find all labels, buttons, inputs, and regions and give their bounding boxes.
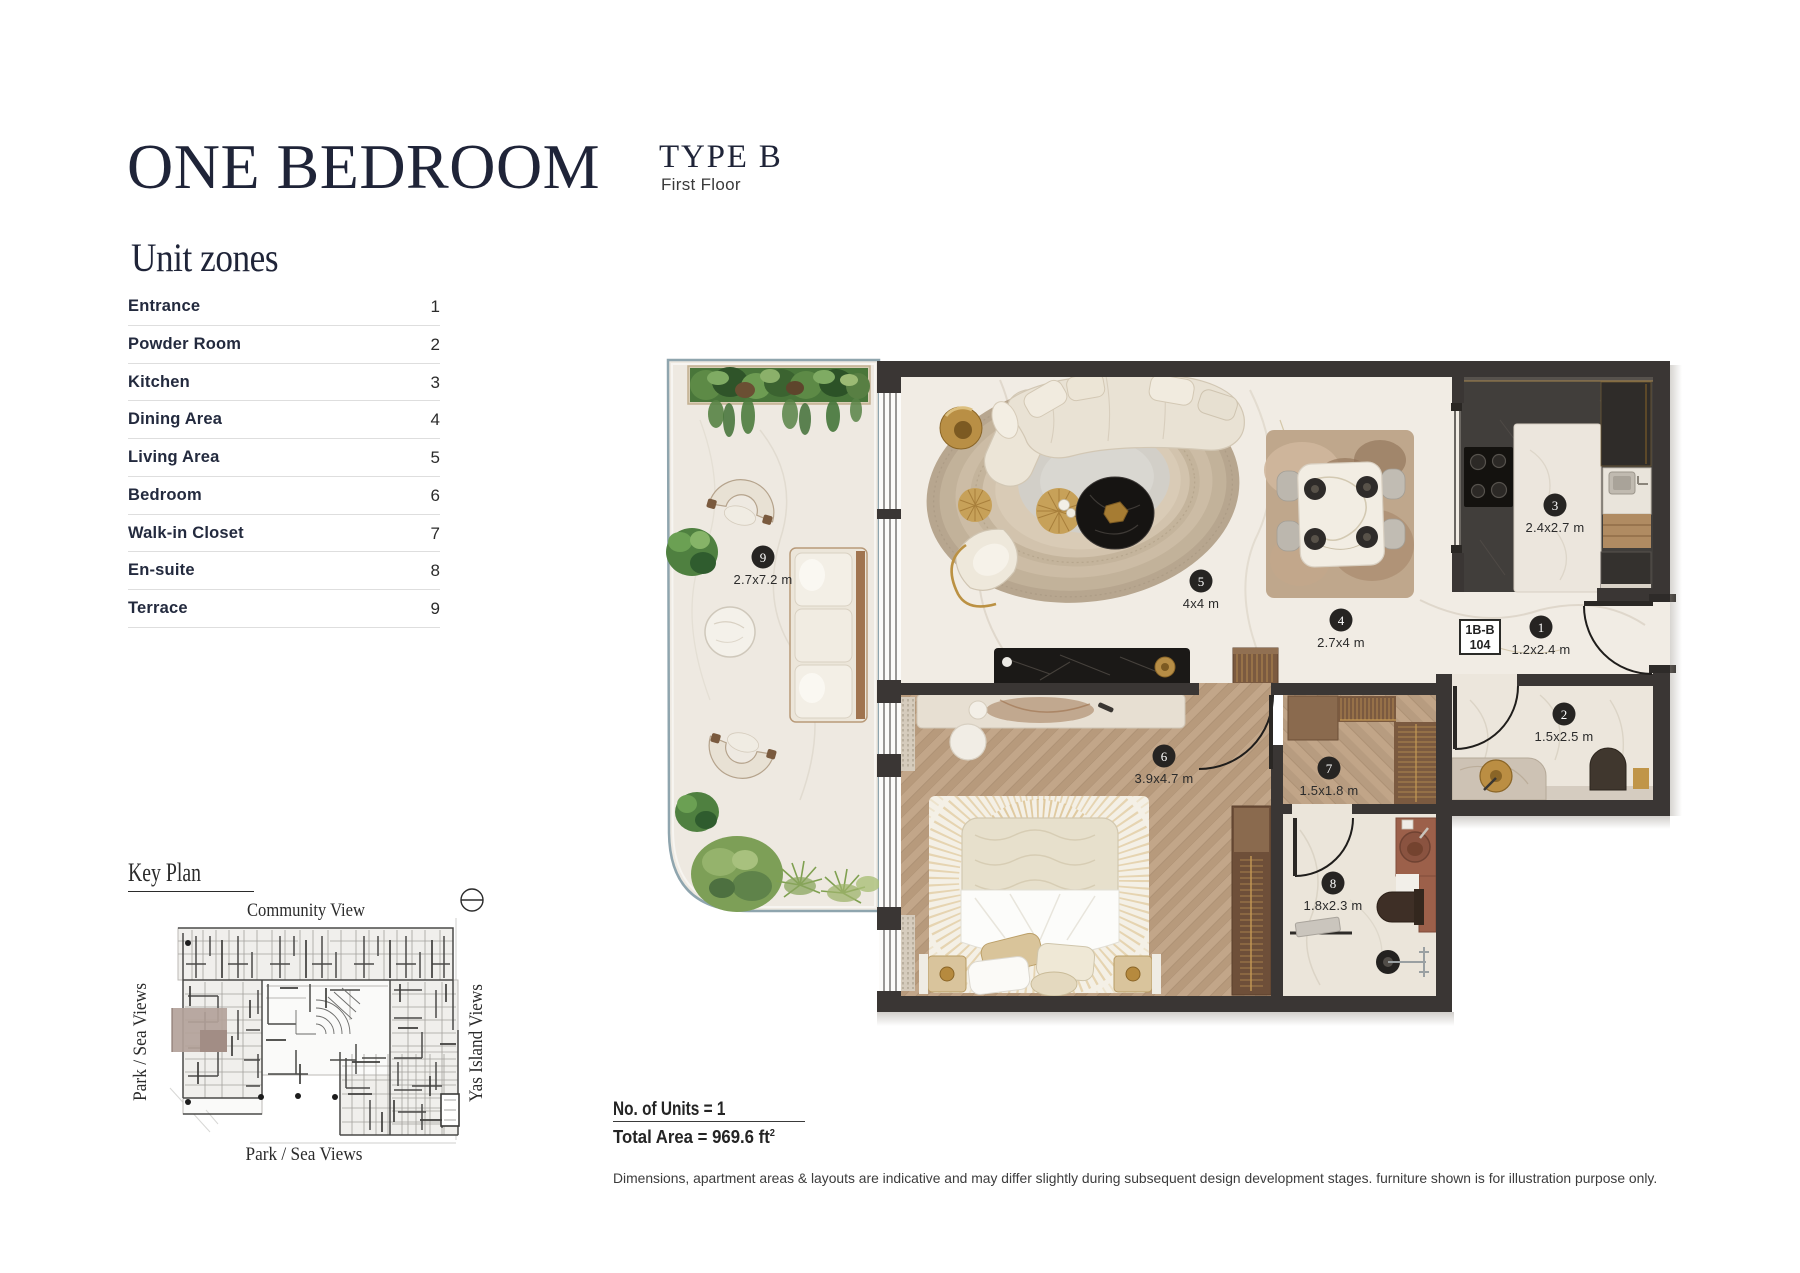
svg-text:Park / Sea Views: Park / Sea Views (246, 1144, 363, 1165)
svg-text:5: 5 (1198, 574, 1205, 589)
svg-text:8: 8 (1330, 876, 1337, 891)
svg-text:Park / Sea Views: Park / Sea Views (130, 983, 151, 1101)
svg-text:1.5x1.8 m: 1.5x1.8 m (1300, 783, 1359, 798)
svg-text:9: 9 (760, 550, 767, 565)
svg-text:4: 4 (1338, 613, 1345, 628)
svg-text:Yas Island Views: Yas Island Views (466, 984, 487, 1102)
svg-text:1: 1 (1538, 620, 1545, 635)
svg-text:1.8x2.3 m: 1.8x2.3 m (1304, 898, 1363, 913)
svg-text:7: 7 (1326, 761, 1333, 776)
svg-text:2.4x2.7 m: 2.4x2.7 m (1526, 520, 1585, 535)
svg-text:104: 104 (1470, 638, 1491, 652)
svg-text:1B-B: 1B-B (1465, 623, 1494, 637)
svg-text:2.7x4 m: 2.7x4 m (1317, 635, 1365, 650)
svg-text:2: 2 (1561, 707, 1568, 722)
svg-text:1.5x2.5 m: 1.5x2.5 m (1535, 729, 1594, 744)
svg-text:3: 3 (1552, 498, 1559, 513)
svg-text:3.9x4.7 m: 3.9x4.7 m (1135, 771, 1194, 786)
svg-text:2.7x7.2 m: 2.7x7.2 m (734, 572, 793, 587)
svg-text:Community View: Community View (247, 900, 365, 921)
svg-text:1.2x2.4 m: 1.2x2.4 m (1512, 642, 1571, 657)
svg-text:6: 6 (1161, 749, 1168, 764)
svg-text:4x4 m: 4x4 m (1183, 596, 1219, 611)
